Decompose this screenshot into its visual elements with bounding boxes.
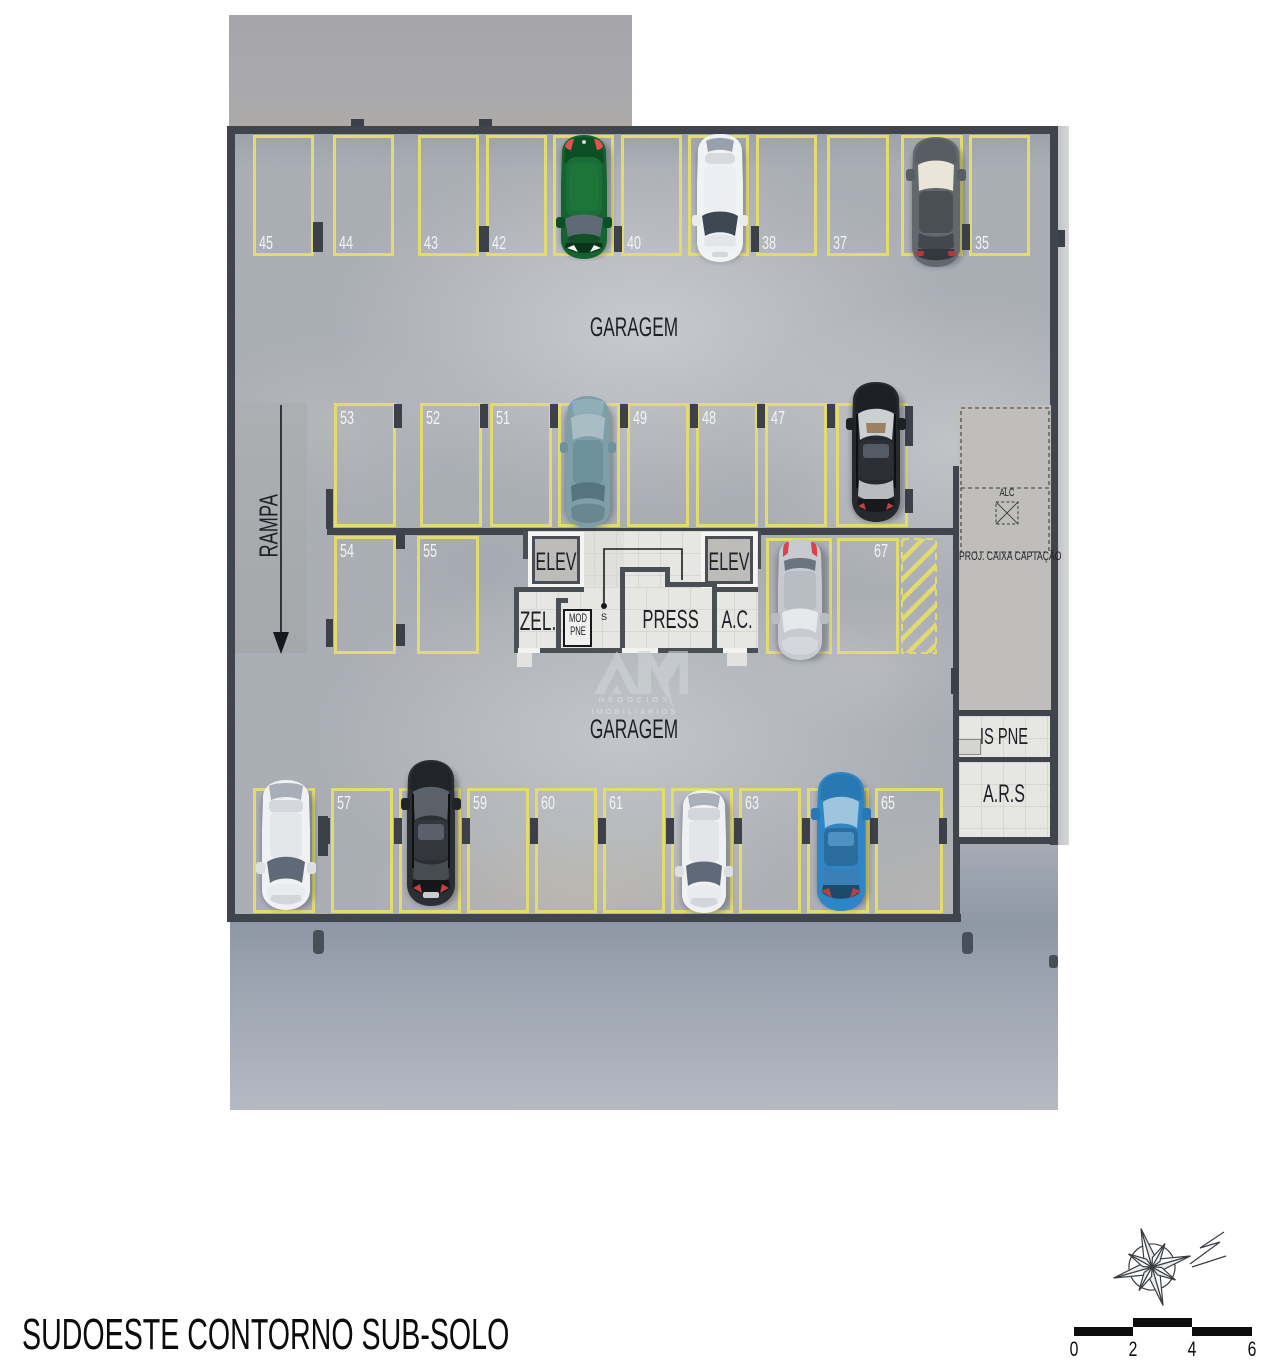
svg-text:S: S [601, 612, 607, 622]
